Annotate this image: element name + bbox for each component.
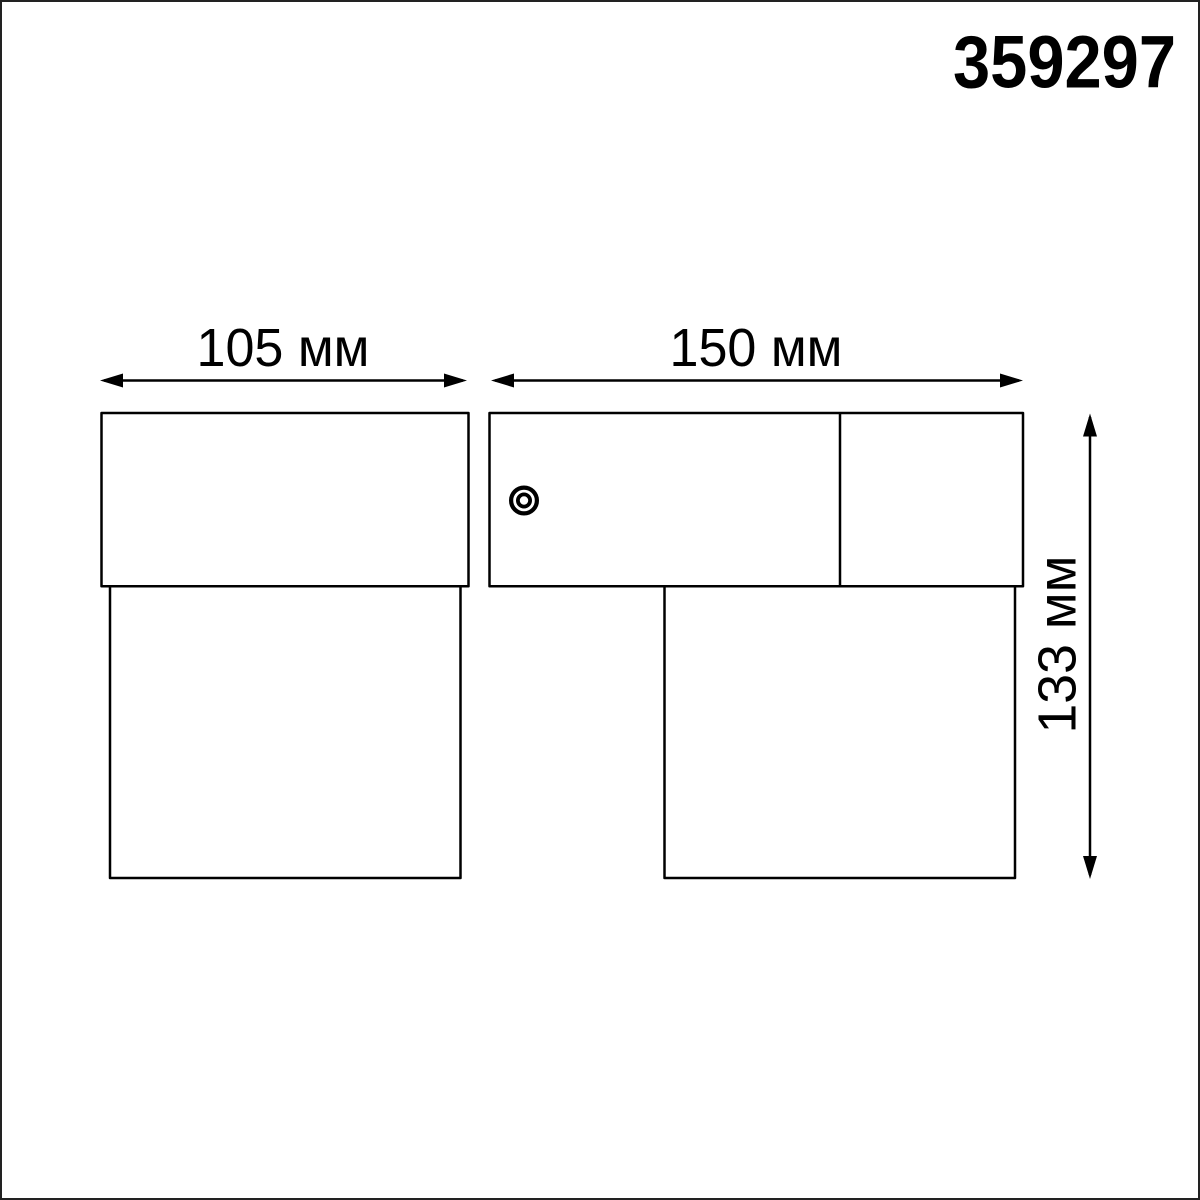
svg-text:133 мм: 133 мм	[1028, 556, 1088, 734]
svg-text:105 мм: 105 мм	[197, 318, 370, 378]
svg-text:150 мм: 150 мм	[670, 318, 843, 378]
svg-text:359297: 359297	[953, 21, 1176, 104]
